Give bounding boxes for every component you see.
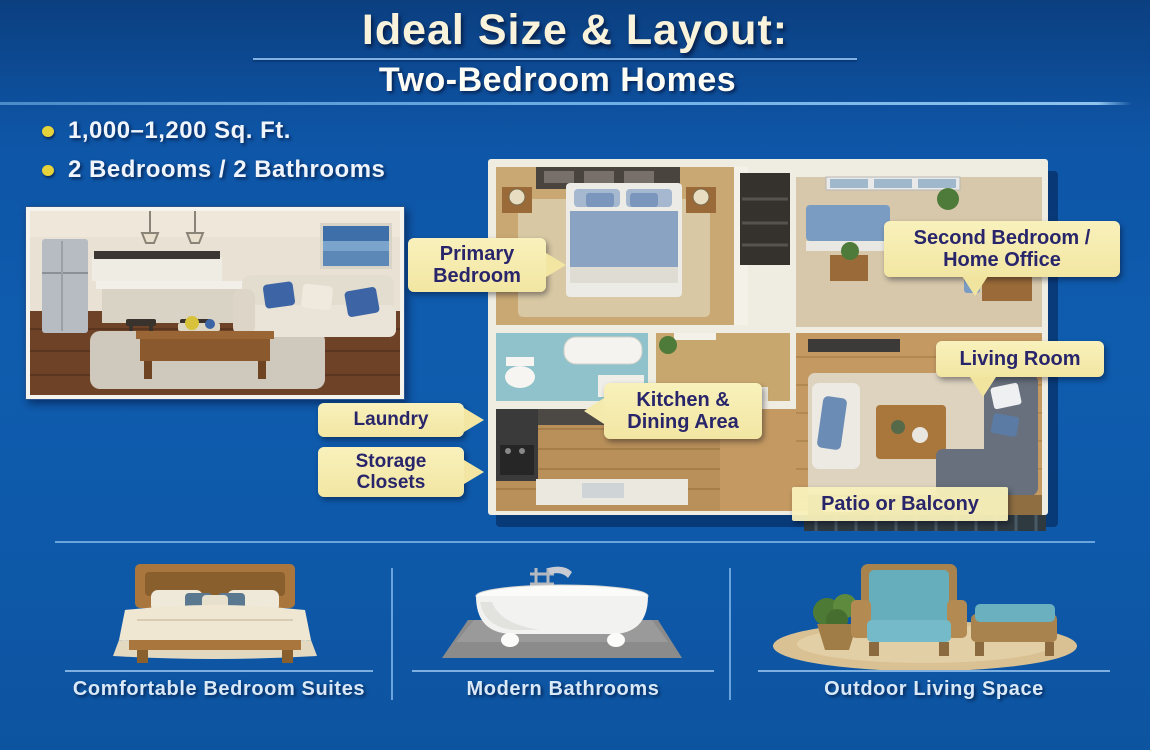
spec-text: 1,000–1,200 Sq. Ft. xyxy=(68,117,291,145)
callout-kitchen-dining-area: Kitchen & Dining Area xyxy=(604,383,762,439)
callout-arrow-down-icon xyxy=(962,276,988,296)
callout-arrow-left-icon xyxy=(584,398,604,424)
callout-arrow-down-icon xyxy=(970,377,996,397)
callout-label: Kitchen & Dining Area xyxy=(610,389,756,434)
feature-caption-bedroom: Comfortable Bedroom Suites xyxy=(20,678,418,701)
sofa xyxy=(233,275,396,337)
callout-living-room: Living Room xyxy=(936,341,1104,377)
bullet-dot-icon xyxy=(42,165,54,176)
header-divider-line xyxy=(0,102,1132,105)
spec-item-rooms: 2 Bedrooms / 2 Bathrooms xyxy=(42,155,482,185)
caption-underline xyxy=(412,670,714,672)
callout-arrow-right-icon xyxy=(546,253,566,277)
callout-label: Second Bedroom / Home Office xyxy=(890,227,1114,272)
bathtub-illustration xyxy=(440,558,685,665)
ocean-painting xyxy=(320,223,392,269)
bullet-dot-icon xyxy=(42,126,54,137)
feature-vertical-divider xyxy=(729,568,731,700)
spec-list: 1,000–1,200 Sq. Ft. 2 Bedrooms / 2 Bathr… xyxy=(42,116,482,194)
spec-item-size: 1,000–1,200 Sq. Ft. xyxy=(42,116,482,146)
bed-illustration xyxy=(95,562,335,664)
caption-underline xyxy=(65,670,373,672)
feature-caption-bathrooms: Modern Bathrooms xyxy=(400,678,726,701)
page-subtitle: Two-Bedroom Homes xyxy=(0,61,1115,100)
callout-arrow-right-icon xyxy=(464,460,484,484)
callout-label: Patio or Balcony xyxy=(821,493,979,515)
callout-label: Storage Closets xyxy=(324,451,458,494)
callout-label: Laundry xyxy=(354,409,429,430)
callout-laundry: Laundry xyxy=(318,403,464,437)
callout-arrow-right-icon xyxy=(464,408,484,432)
slide-background: { "slide": { "title": "Ideal Size & Layo… xyxy=(0,0,1150,750)
outdoor-furniture-illustration xyxy=(765,550,1085,672)
callout-primary-bedroom: Primary Bedroom xyxy=(408,238,546,292)
title-underline xyxy=(253,58,857,60)
callout-patio-or-balcony: Patio or Balcony xyxy=(792,487,1008,521)
interior-photo-illustration xyxy=(30,211,400,395)
callout-label: Primary Bedroom xyxy=(414,243,540,288)
fridge xyxy=(42,239,88,333)
features-top-divider xyxy=(55,541,1095,543)
callout-second-bedroom-home-office: Second Bedroom / Home Office xyxy=(884,221,1120,277)
feature-caption-outdoor: Outdoor Living Space xyxy=(736,678,1132,701)
page-title: Ideal Size & Layout: xyxy=(0,6,1150,55)
interior-photo xyxy=(25,206,405,400)
caption-underline xyxy=(758,670,1110,672)
spec-text: 2 Bedrooms / 2 Bathrooms xyxy=(68,156,385,184)
callout-storage-closets: Storage Closets xyxy=(318,447,464,497)
callout-label: Living Room xyxy=(959,348,1080,370)
